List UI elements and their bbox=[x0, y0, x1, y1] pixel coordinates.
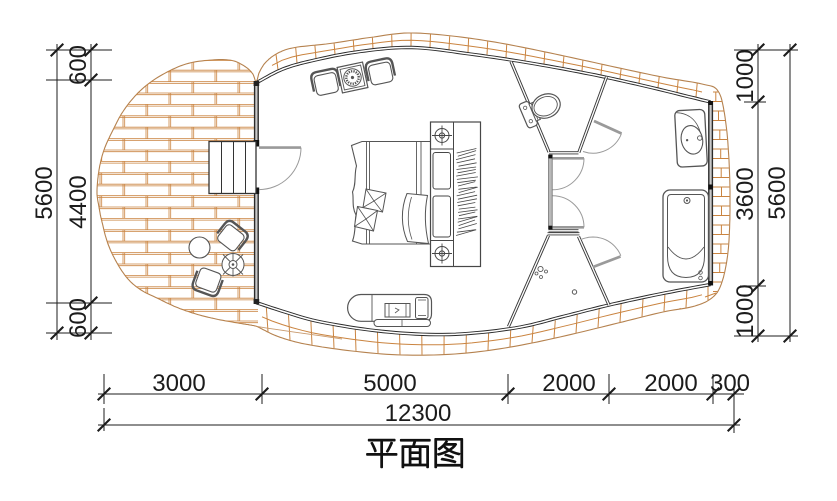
svg-text:4400: 4400 bbox=[65, 175, 92, 228]
svg-text:3000: 3000 bbox=[152, 370, 205, 397]
svg-text:1000: 1000 bbox=[732, 49, 759, 102]
svg-text:5000: 5000 bbox=[363, 370, 416, 397]
svg-text:2000: 2000 bbox=[542, 370, 595, 397]
svg-text:3600: 3600 bbox=[732, 167, 759, 220]
svg-text:5600: 5600 bbox=[764, 166, 791, 219]
svg-text:600: 600 bbox=[65, 298, 92, 338]
svg-text:300: 300 bbox=[710, 370, 750, 397]
svg-text:5600: 5600 bbox=[31, 166, 58, 219]
svg-text:12300: 12300 bbox=[385, 400, 452, 427]
svg-text:1000: 1000 bbox=[732, 284, 759, 337]
svg-text:2000: 2000 bbox=[644, 370, 697, 397]
svg-text:600: 600 bbox=[65, 45, 92, 85]
